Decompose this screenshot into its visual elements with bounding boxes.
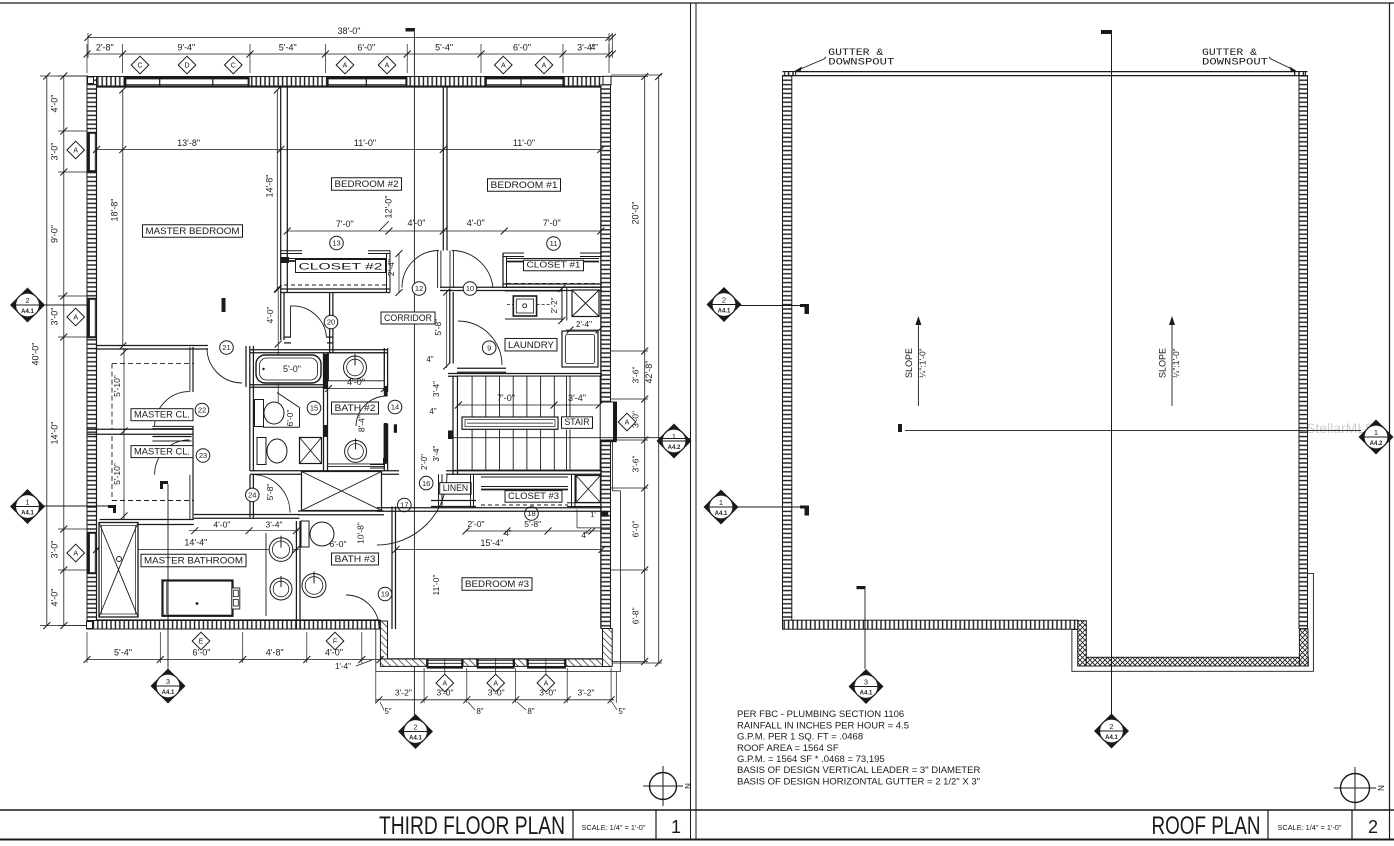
svg-text:5'-8": 5'-8": [265, 484, 275, 501]
svg-text:RAINFALL IN INCHES PER HOUR =: RAINFALL IN INCHES PER HOUR = 4.5: [737, 720, 909, 731]
svg-text:A4.1: A4.1: [162, 690, 175, 696]
svg-text:40'-0": 40'-0": [31, 343, 41, 366]
svg-text:3'-6": 3'-6": [631, 367, 641, 384]
svg-text:42'-8": 42'-8": [644, 361, 654, 384]
svg-text:MASTER CL.: MASTER CL.: [134, 410, 190, 421]
svg-text:N: N: [1376, 785, 1385, 791]
svg-text:ROOF PLAN: ROOF PLAN: [1152, 812, 1261, 840]
svg-text:4'-0": 4'-0": [408, 218, 426, 228]
svg-text:4'-8": 4'-8": [266, 648, 284, 658]
svg-text:A: A: [501, 63, 506, 70]
svg-text:N: N: [683, 783, 692, 789]
svg-text:DOWNSPOUT: DOWNSPOUT: [828, 58, 894, 69]
svg-text:2: 2: [25, 296, 29, 305]
svg-text:14'-4": 14'-4": [184, 537, 207, 547]
svg-text:11'-0": 11'-0": [354, 138, 376, 148]
svg-text:5'-4": 5'-4": [114, 648, 132, 658]
svg-text:A4.1: A4.1: [21, 309, 34, 315]
svg-text:38'-0": 38'-0": [338, 26, 361, 36]
svg-text:8'-4": 8'-4": [357, 415, 367, 432]
svg-text:SLOPE: SLOPE: [1158, 348, 1168, 378]
svg-text:5": 5": [618, 707, 625, 716]
svg-text:4'-0": 4'-0": [213, 520, 230, 530]
svg-text:3: 3: [864, 678, 868, 687]
svg-text:A4.2: A4.2: [1370, 441, 1383, 447]
svg-text:3'-6": 3'-6": [631, 456, 641, 473]
svg-text:A4.1: A4.1: [1105, 735, 1118, 741]
svg-text:4'-0": 4'-0": [50, 95, 60, 113]
svg-text:A4.1: A4.1: [715, 511, 728, 517]
svg-text:4": 4": [581, 531, 588, 540]
svg-text:9'-0": 9'-0": [50, 225, 60, 243]
svg-text:3'-2": 3'-2": [578, 688, 595, 698]
svg-text:2: 2: [1109, 722, 1113, 731]
svg-text:4'-0": 4'-0": [265, 307, 275, 324]
svg-text:E: E: [199, 639, 204, 646]
svg-text:¼":1'-0": ¼":1'-0": [918, 348, 928, 377]
svg-text:6'-0": 6'-0": [357, 43, 375, 53]
svg-text:BATH #3: BATH #3: [335, 554, 376, 565]
svg-text:20'-0": 20'-0": [631, 202, 641, 225]
svg-text:11: 11: [550, 239, 558, 248]
svg-text:7'-0": 7'-0": [336, 219, 354, 229]
svg-text:A: A: [73, 315, 78, 322]
svg-text:5'-4": 5'-4": [435, 43, 453, 53]
svg-text:F: F: [333, 639, 337, 646]
svg-text:1': 1': [590, 510, 596, 519]
svg-text:BEDROOM #1: BEDROOM #1: [491, 180, 558, 191]
svg-text:5'-10": 5'-10": [112, 375, 122, 397]
svg-text:7'-0": 7'-0": [543, 218, 561, 228]
svg-text:17: 17: [400, 501, 408, 510]
svg-text:THIRD FLOOR PLAN: THIRD FLOOR PLAN: [379, 812, 565, 840]
svg-text:2: 2: [1368, 817, 1378, 837]
svg-text:BASIS OF DESIGN HORIZONTAL GUT: BASIS OF DESIGN HORIZONTAL GUTTER = 2 1/…: [737, 776, 980, 787]
svg-text:5'-8": 5'-8": [524, 519, 541, 529]
svg-text:3'-4": 3'-4": [568, 393, 586, 403]
svg-text:G.P.M. PER 1 SQ. FT = .0468: G.P.M. PER 1 SQ. FT = .0468: [737, 732, 863, 743]
svg-text:19: 19: [381, 590, 389, 599]
svg-text:A: A: [625, 420, 630, 427]
svg-text:STAIR: STAIR: [565, 417, 590, 428]
svg-text:20: 20: [327, 318, 335, 327]
svg-text:DOWNSPOUT: DOWNSPOUT: [1202, 58, 1268, 69]
svg-text:4'-0": 4'-0": [347, 377, 365, 387]
svg-text:10: 10: [466, 284, 474, 293]
svg-text:A: A: [385, 63, 390, 70]
svg-text:4": 4": [429, 407, 436, 416]
svg-text:1: 1: [1374, 428, 1378, 437]
svg-text:CLOSET #1: CLOSET #1: [527, 261, 582, 270]
svg-text:11'-0": 11'-0": [431, 574, 441, 595]
svg-text:4'-0": 4'-0": [467, 218, 485, 228]
svg-text:CLOSET #3: CLOSET #3: [508, 491, 559, 502]
svg-text:22: 22: [198, 406, 206, 415]
svg-text:4": 4": [426, 355, 433, 364]
svg-text:BEDROOM #3: BEDROOM #3: [465, 579, 529, 590]
svg-text:A4.1: A4.1: [409, 736, 422, 742]
svg-text:C: C: [137, 63, 142, 70]
svg-text:A: A: [73, 551, 78, 558]
svg-text:MASTER BATHROOM: MASTER BATHROOM: [144, 556, 243, 567]
svg-text:5'-0": 5'-0": [283, 364, 301, 374]
svg-text:13'-8": 13'-8": [177, 138, 200, 148]
svg-text:CORRIDOR: CORRIDOR: [384, 313, 432, 324]
svg-text:5'-4": 5'-4": [279, 43, 297, 53]
svg-text:1: 1: [719, 498, 723, 507]
svg-text:LINEN: LINEN: [443, 483, 469, 494]
svg-text:2'-0": 2'-0": [420, 454, 429, 470]
svg-text:A: A: [493, 681, 498, 688]
svg-text:3'-4": 3'-4": [432, 381, 441, 397]
svg-text:G.P.M. = 1564 SF * .0468 = 73,: G.P.M. = 1564 SF * .0468 = 73,195: [737, 754, 885, 765]
svg-text:1: 1: [672, 432, 676, 441]
svg-text:A: A: [542, 63, 547, 70]
svg-text:SLOPE: SLOPE: [904, 348, 914, 378]
svg-text:18'-8": 18'-8": [110, 199, 120, 222]
svg-text:5'-10": 5'-10": [112, 463, 122, 485]
svg-text:A4.1: A4.1: [21, 511, 34, 517]
svg-text:8": 8": [476, 707, 483, 716]
svg-text:CLOSET #2: CLOSET #2: [299, 261, 383, 272]
svg-text:10'-8": 10'-8": [356, 522, 366, 544]
svg-text:3'-2": 3'-2": [395, 688, 412, 698]
svg-text:2'-4": 2'-4": [576, 320, 592, 329]
svg-text:24: 24: [248, 491, 256, 500]
svg-text:2: 2: [413, 723, 417, 732]
svg-text:6'-0": 6'-0": [631, 521, 641, 538]
svg-text:15'-4": 15'-4": [480, 538, 503, 548]
svg-text:BEDROOM #2: BEDROOM #2: [335, 179, 399, 190]
svg-text:1: 1: [671, 817, 681, 837]
svg-text:15: 15: [310, 404, 318, 413]
svg-text:A4.2: A4.2: [668, 445, 681, 451]
svg-text:3'-0": 3'-0": [50, 308, 60, 326]
svg-text:ROOF AREA = 1564 SF: ROOF AREA = 1564 SF: [737, 743, 839, 754]
svg-text:A4.1: A4.1: [860, 691, 873, 697]
svg-text:9'-4": 9'-4": [177, 43, 195, 53]
svg-text:A: A: [73, 148, 78, 155]
svg-text:13: 13: [332, 239, 340, 248]
svg-text:2'-8": 2'-8": [96, 43, 114, 53]
svg-text:4": 4": [591, 43, 598, 52]
svg-text:2: 2: [722, 296, 726, 305]
svg-text:16: 16: [422, 479, 430, 488]
svg-text:2'-0": 2'-0": [468, 519, 485, 529]
svg-text:A4.1: A4.1: [718, 309, 731, 315]
svg-text:5": 5": [384, 707, 391, 716]
svg-text:3'-0": 3'-0": [50, 541, 60, 559]
svg-text:6'-0": 6'-0": [330, 539, 347, 549]
svg-text:LAUNDRY: LAUNDRY: [508, 340, 555, 351]
svg-text:18: 18: [527, 509, 535, 518]
svg-text:7'-0": 7'-0": [497, 393, 515, 403]
svg-text:23: 23: [199, 451, 207, 460]
svg-text:1: 1: [25, 498, 29, 507]
svg-text:8": 8": [527, 707, 534, 716]
svg-text:C: C: [231, 63, 236, 70]
svg-text:D: D: [184, 63, 189, 70]
svg-text:6'-0": 6'-0": [513, 43, 531, 53]
svg-text:5'-8": 5'-8": [433, 319, 443, 336]
svg-text:1'-4": 1'-4": [335, 662, 351, 671]
svg-text:14'-8": 14'-8": [265, 175, 275, 198]
svg-text:SCALE: 1/4" = 1'-0": SCALE: 1/4" = 1'-0": [1278, 823, 1342, 832]
svg-text:BATH #2: BATH #2: [335, 403, 376, 414]
svg-text:A: A: [544, 681, 549, 688]
svg-text:3: 3: [166, 677, 170, 686]
svg-text:3'-0": 3'-0": [50, 143, 60, 161]
svg-text:6'-0": 6'-0": [285, 410, 295, 427]
svg-text:A: A: [343, 63, 348, 70]
svg-text:21: 21: [222, 343, 230, 352]
svg-text:3'-4": 3'-4": [432, 445, 441, 461]
svg-text:12: 12: [415, 284, 423, 293]
svg-text:¼":1'-0": ¼":1'-0": [1171, 348, 1181, 377]
svg-text:4'-0": 4'-0": [50, 589, 60, 607]
svg-text:14: 14: [391, 403, 399, 412]
svg-text:14'-0": 14'-0": [50, 422, 60, 445]
svg-text:12'-0": 12'-0": [383, 196, 393, 219]
svg-text:2'-2": 2'-2": [550, 297, 559, 313]
svg-text:BASIS OF DESIGN VERTICAL LEADE: BASIS OF DESIGN VERTICAL LEADER = 3" DIA…: [737, 765, 980, 776]
svg-text:MASTER BEDROOM: MASTER BEDROOM: [146, 226, 240, 237]
svg-text:MASTER CL.: MASTER CL.: [134, 446, 190, 457]
svg-text:A: A: [442, 681, 447, 688]
svg-text:9: 9: [487, 343, 491, 352]
svg-text:2'-4": 2'-4": [386, 259, 396, 276]
svg-text:11'-0": 11'-0": [513, 138, 535, 148]
svg-text:3'-4": 3'-4": [266, 520, 283, 530]
svg-text:SCALE: 1/4" = 1'-0": SCALE: 1/4" = 1'-0": [582, 823, 646, 832]
svg-text:6'-8": 6'-8": [631, 607, 641, 624]
svg-text:PER FBC - PLUMBING SECTION 110: PER FBC - PLUMBING SECTION 1106: [737, 709, 904, 720]
